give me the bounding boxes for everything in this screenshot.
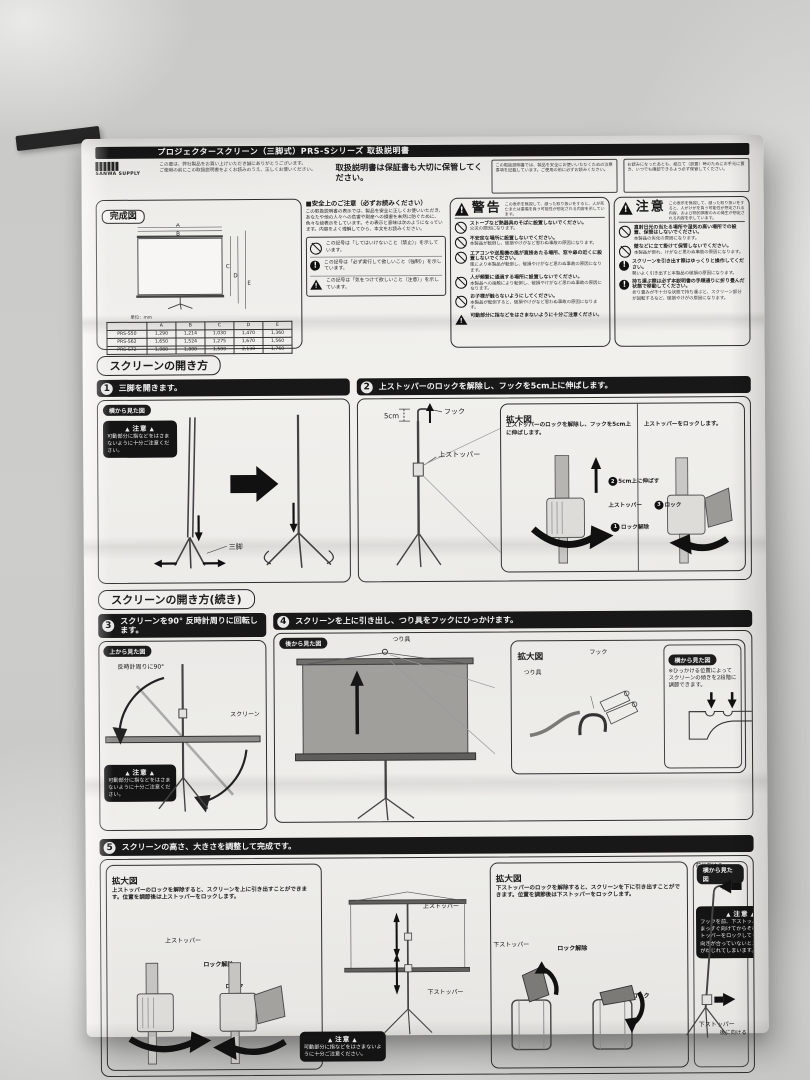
step2-title: 上ストッパーのロックを解除し、フックを5cm上に伸ばします。 bbox=[379, 381, 613, 392]
caution-note: この表示を無視して、誤った取り扱いをすると、人がけがを負う可能性が想定される内容… bbox=[669, 200, 745, 220]
step4-panel: 後から見た図 つり具 bbox=[273, 630, 753, 823]
intro-text: この度は、弊社製品をお買い上げいただき誠にありがとうございます。 ご使用の前にこ… bbox=[159, 161, 329, 196]
warning-note: この表示を無視して、誤った取り扱いをすると、人が死亡または重傷を負う可能性が想定… bbox=[505, 201, 605, 217]
label-hook: フック bbox=[444, 408, 465, 416]
step5-center: 上ストッパー 下ストッパー bbox=[327, 863, 486, 1070]
step2: 2 上ストッパーのロックを解除し、フックを5cm上に伸ばします。 bbox=[357, 376, 752, 582]
legend-item: この記号は「気をつけて欲しいこと（注意）」を示しています。 bbox=[310, 276, 442, 294]
dimension-col-header: E bbox=[263, 321, 292, 329]
label-upper-stopper: 上ストッパー bbox=[438, 450, 480, 459]
floor-background: プロジェクタースクリーン（三脚式）PRS-Sシリーズ 取扱説明書 SANWA S… bbox=[0, 0, 810, 1080]
safety-item-icon bbox=[455, 222, 467, 234]
step5-side-pole-diagram bbox=[651, 866, 748, 1057]
safety-item-body: 本製品が転倒し、破損やけがなど思わぬ事故の原因になります。 bbox=[470, 241, 597, 247]
step2-sub2-step3: 3ロック bbox=[655, 500, 682, 509]
step5: 5 スクリーンの高さ、大きさを調整して完成です。 拡大図 上ストッパーのロックを… bbox=[100, 835, 755, 1077]
step5-left-zoom-box: 拡大図 上ストッパーのロックを解除すると、スクリーンを上に引き出すことができます… bbox=[106, 864, 323, 1071]
completed-screen-diagram: A B C D E bbox=[102, 223, 287, 310]
dimension-table: ABCDE PRS-S501,2901,2141,0301,4701,360PR… bbox=[106, 321, 292, 355]
safety-item: 壁などに立て掛けて保管しないでください。 本製品が倒れ、けがなど思わぬ事故の原因… bbox=[619, 244, 745, 257]
table-cell: 1,500 bbox=[205, 346, 234, 354]
safety-item-icon bbox=[455, 295, 467, 307]
step1-tripod-diagram: 三脚 bbox=[98, 399, 349, 581]
safety-item: お子様が触らないようにしてください。 本製品が転倒すると、破損やけがなど思わぬ事… bbox=[455, 294, 605, 311]
step4-bar: 4 スクリーンを上に引き出し、つり具をフックにひっかけます。 bbox=[273, 610, 752, 630]
keep-manual-note: 取扱説明書は保証書も大切に保管してください。 bbox=[335, 160, 485, 195]
table-cell: PRS-S72 bbox=[107, 346, 147, 354]
safety-item-body: 本製品への接触により転倒し、破損やけがなど思わぬ事故の原因になります。 bbox=[470, 281, 605, 292]
step3-rotation-diagram bbox=[99, 641, 266, 828]
safety-item: ストーブなど熱器具のそばに設置しないでください。 火災の原因になります。 bbox=[455, 220, 605, 233]
dim-a-label: A bbox=[176, 223, 180, 229]
dimension-table-body: PRS-S501,2901,2141,0301,4701,360PRS-S621… bbox=[107, 329, 292, 354]
step1: 1 三脚を開きます。 横から見た図 注意 可動部分に指などをはさまないように十分… bbox=[97, 378, 351, 584]
safety-item-head: 可動部分に指などをはさまないように十分ご注意ください。 bbox=[470, 313, 602, 320]
safety-item-body: 本製品の劣化の原因になります。 bbox=[634, 236, 745, 242]
step4-title: スクリーンを上に引き出し、つり具をフックにひっかけます。 bbox=[295, 615, 518, 626]
dim-c-label: C bbox=[226, 264, 230, 270]
hook-detail-label: フック bbox=[589, 649, 607, 656]
sanwa-logo-text: SANWA SUPPLY bbox=[95, 172, 153, 177]
step5-frame-diagram bbox=[327, 863, 486, 1060]
step2-unlock-diagram bbox=[507, 451, 636, 570]
caution-triangle-icon bbox=[619, 202, 633, 215]
safety-item-icon bbox=[455, 252, 467, 264]
table-cell: 1,360 bbox=[263, 329, 292, 337]
caution-box: 注意 この表示を無視して、誤った取り扱いをすると、人がけがを負う可能性が想定され… bbox=[614, 196, 751, 347]
unit-note: 単位：mm bbox=[130, 314, 296, 321]
step1-bar: 1 三脚を開きます。 bbox=[97, 378, 350, 397]
dim-d-label: D bbox=[233, 273, 237, 279]
step5-right-zoom-label: 拡大図 bbox=[496, 874, 522, 884]
safety-item: 人が頻繁に通過する場所に設置しないでください。 本製品への接触により転倒し、破損… bbox=[455, 275, 605, 292]
step5-right-stopper-label: 下ストッパー bbox=[493, 941, 529, 948]
step5-title: スクリーンの高さ、大きさを調整して完成です。 bbox=[122, 842, 297, 852]
section-title-open: スクリーンの開き方 bbox=[97, 355, 222, 376]
step4-zoom-box: 拡大図 フック つり具 横から見た図 bbox=[510, 639, 746, 774]
safety-item-body: 風により本製品が転倒し、破損やけがなど思わぬ事故の原因になります。 bbox=[470, 262, 605, 273]
safety-item-body: 本製品が転倒すると、破損やけがなど思わぬ事故の原因になります。 bbox=[470, 300, 605, 311]
safety-symbol-icon bbox=[310, 242, 322, 254]
step4-zoom-label: 拡大図 bbox=[517, 652, 543, 662]
safety-symbol-icon bbox=[310, 279, 322, 289]
table-row: PRS-S721,9801,8001,5002,1301,760 bbox=[107, 345, 292, 354]
step4-notch-diagram bbox=[669, 689, 754, 742]
table-cell: 1,800 bbox=[176, 346, 205, 354]
step5-upper-clamps-diagram bbox=[111, 959, 302, 1068]
safety-item: 可動部分に指などをはさまないように十分ご注意ください。 bbox=[455, 313, 605, 324]
step3-panel: 上から見た図 反時計周りに90° スクリーン 注意 可動部分に指などをはさまない… bbox=[98, 640, 267, 831]
caution-title: 注意 bbox=[636, 201, 666, 215]
step1-title: 三脚を開きます。 bbox=[119, 383, 182, 393]
legend-text: この記号は「してはいけないこと（禁止）」を示しています。 bbox=[326, 241, 442, 254]
table-cell: 1,670 bbox=[234, 337, 263, 345]
table-cell: 1,980 bbox=[147, 346, 176, 354]
step5-pinch-caution: 注意 可動部分に指などをはさまないように十分ご注意ください。 bbox=[300, 1031, 386, 1062]
table-cell: 1,760 bbox=[263, 345, 292, 353]
dimension-col-header bbox=[107, 322, 147, 330]
table-cell: 1,290 bbox=[147, 330, 176, 338]
step4-side-view-tag: 横から見た図 bbox=[668, 654, 716, 665]
hanger-detail-label: つり具 bbox=[524, 669, 542, 676]
manual-sheet: プロジェクタースクリーン（三脚式）PRS-Sシリーズ 取扱説明書 SANWA S… bbox=[81, 135, 768, 1037]
safety-item: エアコンや送風機の風が直接あたる場所、窓や扉の近くに設置しないでください。 風に… bbox=[455, 250, 605, 273]
table-cell: 1,560 bbox=[263, 337, 292, 345]
sanwa-logo-mark bbox=[95, 162, 153, 171]
step5-left-zoom-label: 拡大図 bbox=[112, 877, 138, 887]
step5-side-box: 横から見た図 前に向ける フック 注意 フックを前、下ストッパーを後にまっすぐ向… bbox=[693, 861, 749, 1067]
step1-number: 1 bbox=[101, 382, 113, 394]
warning-title: 警告 bbox=[472, 202, 502, 216]
safety-item-body: 勢いよく引き出すと本製品の破損の原因になります。 bbox=[632, 271, 745, 277]
warning-items: ストーブなど熱器具のそばに設置しないでください。 火災の原因になります。 不安定… bbox=[455, 220, 606, 324]
warning-box: 警告 この表示を無視して、誤った取り扱いをすると、人が死亡または重傷を負う可能性… bbox=[450, 197, 611, 348]
step5-left-text: 上ストッパーのロックを解除すると、スクリーンを上に引き出すことができます。位置を… bbox=[112, 887, 316, 903]
step2-sub1-head: 上ストッパーのロックを解除し、フックを5cm上に伸ばします。 bbox=[506, 420, 635, 437]
dimension-col-header: A bbox=[147, 322, 176, 330]
warning-triangle-icon bbox=[455, 203, 469, 216]
fine-print-box-1: この取扱説明書では、製品を安全にお使いいただくための注意事項を記載しています。ご… bbox=[491, 159, 617, 194]
step5-left-stopper-label: 上ストッパー bbox=[165, 937, 201, 944]
step4-side-note: ※ひっかける位置によってスクリーンの傾きを2段階に調節できます。 bbox=[669, 668, 737, 689]
safety-item-body: 折り畳みが不十分な状態で持ち運ぶと、スクリーン部分が回転するなど、破損やけがの原… bbox=[632, 290, 745, 301]
safety-item-body: 火災の原因になります。 bbox=[470, 226, 587, 232]
step3: 3 スクリーンを90° 反時計周りに回転します。 上から見た図 反時計周りに90… bbox=[98, 613, 267, 831]
safety-item-icon bbox=[619, 260, 629, 270]
table-cell: 1,650 bbox=[147, 338, 176, 346]
step2-bar: 2 上ストッパーのロックを解除し、フックを5cm上に伸ばします。 bbox=[357, 376, 751, 395]
safety-item-body: 本製品が倒れ、けがなど思わぬ事故の原因になります。 bbox=[634, 250, 743, 256]
fine-print-box-2: お読みになったあとも、組立て（設置）時のためにお手元に置き、いつでも確認できるよ… bbox=[623, 158, 749, 193]
safety-item: 直射日光の当たる場所や湿気の高い場所での設置、保管はしないでください。 本製品の… bbox=[619, 225, 745, 243]
tripod-label: 三脚 bbox=[229, 542, 243, 551]
legend-item: この記号は「必ず実行して欲しいこと（強制）」を示しています。 bbox=[310, 257, 442, 276]
safety-notes: ■安全上のご注意（必ずお読みください） この取扱説明書の表示では、製品を安全に正… bbox=[306, 198, 447, 349]
table-cell: 1,030 bbox=[205, 330, 234, 338]
completed-figure-label: 完成図 bbox=[102, 210, 145, 224]
dim-b-label: B bbox=[176, 232, 180, 238]
step5-lower-clamps-diagram bbox=[495, 961, 668, 1066]
legend-text: この記号は「気をつけて欲しいこと（注意）」を示しています。 bbox=[326, 278, 442, 291]
step4-side-box: 横から見た図 ※ひっかける位置によってスクリーンの傾きを2段階に調節できます。 bbox=[663, 644, 742, 768]
step2-lock-diagram bbox=[632, 454, 737, 567]
label-5cm: 5cm bbox=[384, 412, 399, 420]
safety-item-icon bbox=[619, 226, 631, 238]
step2-panel: 5cm フック 上ストッパー 拡大図 上ストッパーのロックを解除し、フックを5c… bbox=[357, 396, 752, 582]
dimension-col-header: D bbox=[234, 321, 263, 329]
safety-item-icon bbox=[619, 245, 631, 257]
step4-screen-diagram bbox=[276, 637, 495, 822]
safety-item-icon bbox=[455, 237, 467, 249]
step3-bar: 3 スクリーンを90° 反時計周りに回転します。 bbox=[98, 613, 266, 638]
step3-number: 3 bbox=[102, 620, 114, 632]
safety-item: スクリーンを引き出す際はゆっくりと操作してください。 勢いよく引き出すと本製品の… bbox=[619, 259, 745, 277]
step1-panel: 横から見た図 注意 可動部分に指などをはさまないように十分ご注意ください。 bbox=[97, 398, 351, 584]
safety-item: 不安定な場所に設置しないでください。 本製品が転倒し、破損やけがなど思わぬ事故の… bbox=[455, 235, 605, 248]
step3-title: スクリーンを90° 反時計周りに回転します。 bbox=[120, 616, 262, 635]
step4: 4 スクリーンを上に引き出し、つり具をフックにひっかけます。 後から見た図 つり… bbox=[273, 610, 753, 830]
step5-number: 5 bbox=[104, 841, 116, 853]
table-cell: 1,214 bbox=[176, 330, 205, 338]
dimension-col-header: B bbox=[176, 322, 205, 330]
legend-item: この記号は「してはいけないこと（禁止）」を示しています。 bbox=[310, 239, 442, 258]
intro-line-2: ご使用の前にこの取扱説明書をよくお読みのうえ、正しくお使いください。 bbox=[159, 168, 329, 175]
safety-intro: この取扱説明書の表示では、製品を安全に正しくお使いいただき、あなたや他の人々への… bbox=[306, 209, 446, 234]
safety-item: 持ち運ぶ際は必ず本説明書の手順通りに折り畳んだ状態で移動してください。 折り畳み… bbox=[619, 279, 745, 302]
step2-number: 2 bbox=[361, 381, 373, 393]
symbol-legend: この記号は「してはいけないこと（禁止）」を示しています。 この記号は「必ず実行し… bbox=[306, 236, 446, 297]
safety-item-head: スクリーンを引き出す際はゆっくりと操作してください。 bbox=[632, 259, 745, 271]
dimension-col-header: C bbox=[205, 322, 234, 330]
step5-panel: 拡大図 上ストッパーのロックを解除すると、スクリーンを上に引き出すことができます… bbox=[100, 855, 755, 1077]
table-cell: PRS-S50 bbox=[107, 330, 147, 338]
step2-pole-diagram: 5cm フック 上ストッパー bbox=[360, 400, 501, 581]
step5-right-unlock-label: ロック解除 bbox=[557, 945, 587, 952]
table-cell: 1,524 bbox=[176, 338, 205, 346]
safety-symbol-icon bbox=[310, 261, 320, 271]
caution-items: 直射日光の当たる場所や湿気の高い場所での設置、保管はしないでください。 本製品の… bbox=[619, 225, 745, 302]
safety-item-head: 直射日光の当たる場所や湿気の高い場所での設置、保管はしないでください。 bbox=[634, 225, 745, 237]
table-cell: 1,275 bbox=[205, 338, 234, 346]
step2-sub2-head: 上ストッパーをロックします。 bbox=[644, 419, 741, 428]
table-cell: 2,130 bbox=[234, 345, 263, 353]
dim-e-label: E bbox=[247, 281, 251, 287]
table-cell: PRS-S62 bbox=[107, 338, 147, 346]
step4-hook-diagram bbox=[514, 685, 655, 772]
legend-text: この記号は「必ず実行して欲しいこと（強制）」を示しています。 bbox=[324, 260, 442, 273]
step5-bar: 5 スクリーンの高さ、大きさを調整して完成です。 bbox=[100, 835, 754, 856]
step4-number: 4 bbox=[277, 615, 289, 627]
safety-item-icon bbox=[619, 280, 629, 290]
section-title-open-cont: スクリーンの開き方(続き) bbox=[98, 589, 255, 610]
sanwa-logo: SANWA SUPPLY bbox=[95, 162, 153, 196]
safety-item-icon bbox=[455, 314, 467, 324]
safety-title: ■安全上のご注意（必ずお読みください） bbox=[306, 198, 446, 208]
completed-figure-box: 完成図 A bbox=[96, 199, 303, 350]
manual-title-bar: プロジェクタースクリーン（三脚式）PRS-Sシリーズ 取扱説明書 bbox=[95, 143, 749, 159]
step2-zoom-box: 拡大図 上ストッパーのロックを解除し、フックを5cm上に伸ばします。 上ストッパ… bbox=[500, 402, 746, 572]
safety-item-icon bbox=[455, 277, 467, 289]
table-cell: 1,470 bbox=[234, 329, 263, 337]
